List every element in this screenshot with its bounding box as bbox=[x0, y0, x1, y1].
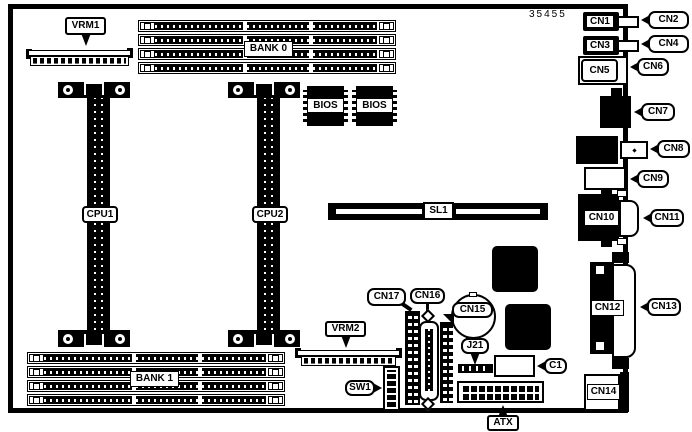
cn7-label: CN7 bbox=[641, 103, 675, 121]
cn14-block bbox=[620, 372, 629, 412]
j21-label: J21 bbox=[461, 338, 489, 354]
cn8-port bbox=[620, 141, 648, 159]
dimm-slot-bank0-1 bbox=[138, 20, 396, 32]
c1-component bbox=[494, 355, 535, 377]
cn10-nut-bottom bbox=[617, 238, 627, 245]
cn12-label: CN12 bbox=[591, 300, 624, 316]
cn8-label: CN8 bbox=[657, 140, 690, 158]
cpu1-bracket-bottom bbox=[58, 330, 130, 347]
cn6-label: CN6 bbox=[637, 58, 669, 76]
dimm-slot-bank0-4 bbox=[138, 62, 396, 74]
bios-chip-2: BIOS bbox=[352, 86, 397, 126]
cn8-connector bbox=[576, 136, 618, 164]
dimm-slot-bank1-1 bbox=[27, 352, 285, 364]
cn1-label: CN1 bbox=[586, 15, 614, 28]
cn12-pin-top bbox=[596, 266, 604, 274]
cn10-nut-top bbox=[617, 190, 627, 197]
cn3-plug bbox=[617, 40, 639, 52]
cpu2-label: CPU2 bbox=[252, 206, 288, 223]
vrm2-label: VRM2 bbox=[325, 321, 366, 337]
cn4-label: CN4 bbox=[648, 35, 689, 53]
cn16-label: CN16 bbox=[410, 288, 445, 304]
cn9-label: CN9 bbox=[637, 170, 669, 188]
cn13-label: CN13 bbox=[647, 298, 681, 316]
atx-label: ATX bbox=[487, 415, 519, 431]
bank0-label: BANK 0 bbox=[244, 41, 293, 57]
cpu2-bracket-bottom bbox=[228, 330, 300, 347]
cn10-screw-bottom bbox=[601, 240, 612, 247]
cn10-label: CN10 bbox=[584, 210, 619, 226]
cn11-label: CN11 bbox=[650, 209, 684, 227]
cn12-screw-top bbox=[612, 252, 629, 263]
cn7-connector bbox=[600, 96, 631, 128]
cpu1-label: CPU1 bbox=[82, 206, 118, 223]
cn16-connector bbox=[419, 311, 439, 411]
c1-label: C1 bbox=[544, 358, 567, 374]
bios-chip-1: BIOS bbox=[303, 86, 348, 126]
sw1-label: SW1 bbox=[345, 380, 375, 396]
cn10-dshell bbox=[619, 200, 639, 237]
vrm1-slot bbox=[26, 48, 133, 67]
cn17-label: CN17 bbox=[367, 288, 406, 306]
sl1-label: SL1 bbox=[423, 202, 454, 220]
cn9-connector bbox=[584, 167, 626, 190]
cn3-label: CN3 bbox=[586, 39, 614, 52]
cn1-plug bbox=[617, 16, 639, 28]
cn12-pin-bottom bbox=[596, 342, 604, 350]
sw1-dip-switch bbox=[383, 366, 400, 411]
cn15-label: CN15 bbox=[452, 302, 493, 318]
bios-label-2: BIOS bbox=[356, 98, 393, 113]
dimm-slot-bank1-4 bbox=[27, 394, 285, 406]
atx-connector bbox=[457, 381, 544, 403]
vrm1-label: VRM1 bbox=[65, 17, 106, 35]
cpu2-bracket-top bbox=[228, 82, 300, 98]
battery-notch bbox=[469, 292, 477, 297]
cn15-header bbox=[440, 322, 453, 403]
part-number: 35455 bbox=[529, 9, 567, 20]
j21-header bbox=[458, 364, 493, 373]
cn14-label: CN14 bbox=[587, 384, 620, 400]
motherboard-layout-diagram: 35455 VRM1 BANK 0 BIOS BIOS CPU1 bbox=[0, 0, 692, 432]
vrm2-slot bbox=[295, 348, 402, 366]
cn2-label: CN2 bbox=[648, 11, 689, 29]
cpu1-bracket-top bbox=[58, 82, 130, 98]
bios-label-1: BIOS bbox=[307, 98, 344, 113]
cn17-header bbox=[405, 311, 420, 405]
asic-chip-2 bbox=[505, 304, 551, 350]
cn12-screw-bottom bbox=[612, 358, 629, 369]
cn5-label: CN5 bbox=[581, 59, 618, 82]
bank1-label: BANK 1 bbox=[130, 371, 179, 387]
asic-chip-1 bbox=[492, 246, 538, 292]
